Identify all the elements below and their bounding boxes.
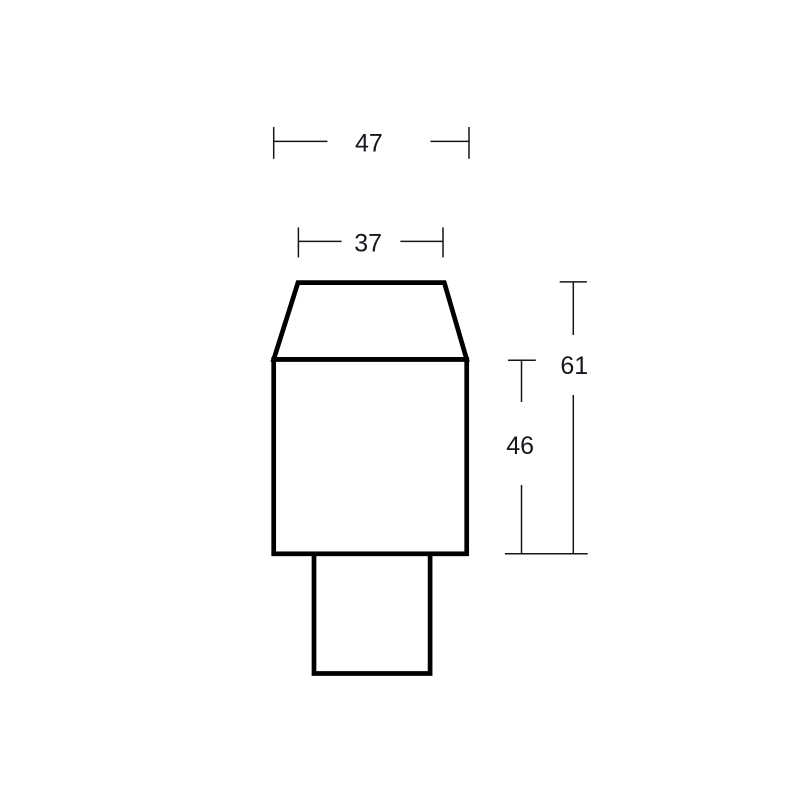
svg-text:37: 37 <box>354 230 382 258</box>
svg-text:46: 46 <box>506 432 534 460</box>
svg-text:47: 47 <box>355 130 383 158</box>
svg-text:61: 61 <box>560 352 588 380</box>
